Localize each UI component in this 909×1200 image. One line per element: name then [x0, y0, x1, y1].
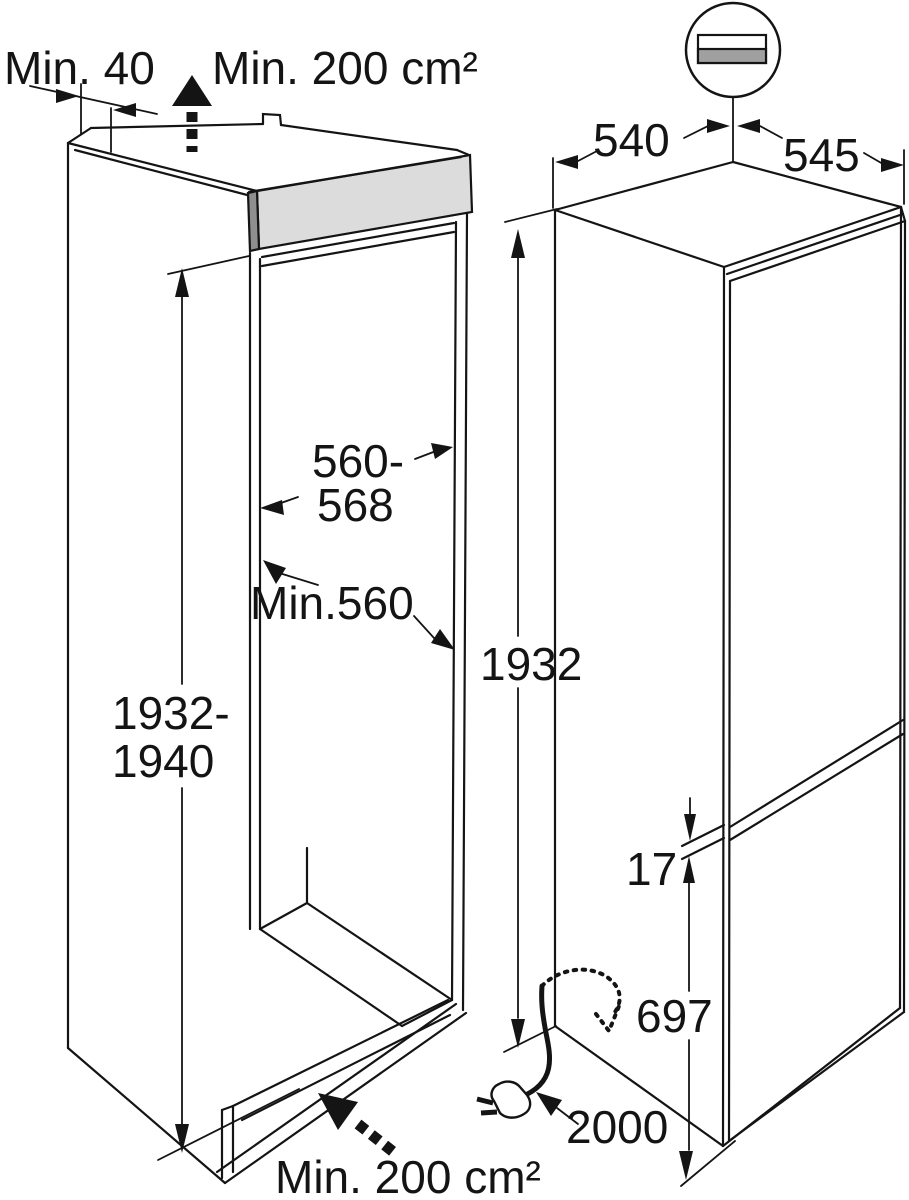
- label-niche-depth: Min.560: [250, 577, 414, 629]
- dimension-appliance-height: [504, 209, 557, 1052]
- label-niche-height-line2: 1940: [112, 735, 214, 787]
- label-power-cord-length: 2000: [566, 1101, 668, 1153]
- label-freezer-door-height: 697: [636, 990, 713, 1042]
- power-plug-icon: [477, 1082, 530, 1118]
- dimension-wall-clearance: [30, 84, 157, 152]
- label-bottom-ventilation: Min. 200 cm²: [275, 1151, 541, 1200]
- label-top-ventilation: Min. 200 cm²: [212, 42, 478, 94]
- installation-diagram-canvas: Min. 40 Min. 200 cm² 560- 568 Min.560 19…: [0, 0, 909, 1200]
- niche-cabinet-drawing: [68, 114, 472, 1183]
- label-appliance-depth: 545: [783, 129, 860, 181]
- label-niche-width-line2: 568: [317, 479, 394, 531]
- label-wall-clearance: Min. 40: [4, 42, 155, 94]
- top-ventilation-arrow-icon: [172, 75, 212, 152]
- label-niche-height-line1: 1932-: [112, 687, 230, 739]
- label-door-gap: 17: [626, 843, 677, 895]
- bottom-ventilation-arrow-icon: [318, 1093, 396, 1154]
- label-appliance-width: 540: [593, 114, 670, 166]
- cable-route-arrow-icon: [542, 970, 621, 1031]
- appliance-drawing: [555, 162, 905, 1146]
- label-appliance-height: 1932: [480, 638, 582, 690]
- grille-detail-circle: [686, 3, 780, 97]
- installation-diagram-page: Min. 40 Min. 200 cm² 560- 568 Min.560 19…: [0, 0, 909, 1200]
- ventilation-grille: [248, 155, 472, 251]
